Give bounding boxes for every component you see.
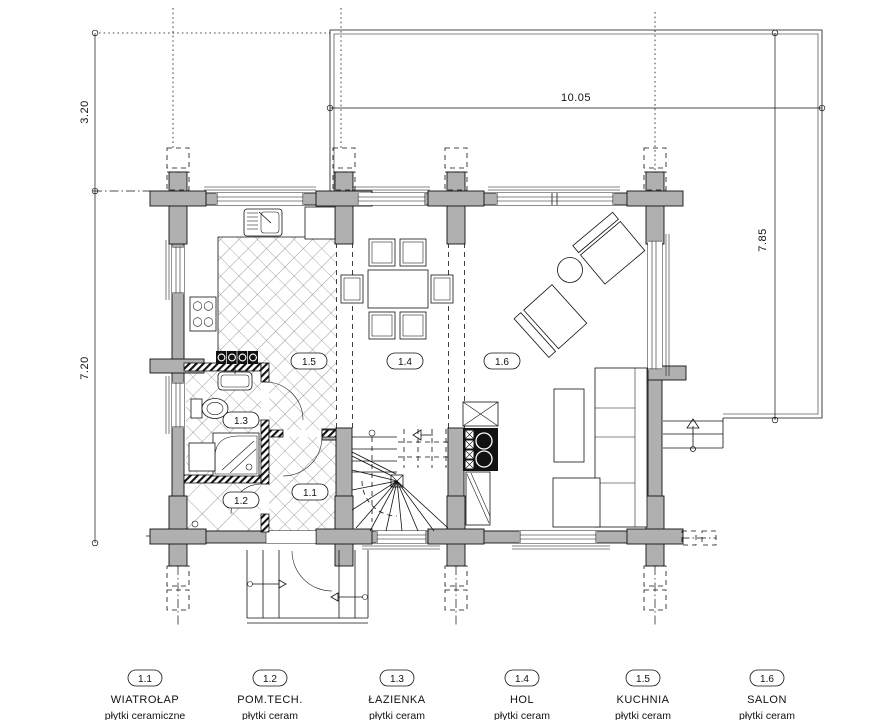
porch-arrow-left	[248, 580, 287, 588]
window-living-east	[648, 240, 662, 370]
svg-text:WIATROŁAP: WIATROŁAP	[111, 694, 179, 706]
window-kitchen-north	[216, 193, 304, 205]
terrace-steps	[663, 418, 723, 452]
corridor-floor-hatch	[269, 363, 336, 430]
room-label-1-4: 1.4	[387, 353, 423, 369]
svg-text:1.1: 1.1	[138, 674, 152, 685]
porch-arrow-right	[331, 593, 368, 601]
svg-text:1.5: 1.5	[302, 357, 316, 368]
window-hall-north	[357, 193, 426, 205]
fireplace	[463, 402, 498, 525]
dim-label-3-20: 3.20	[79, 100, 91, 123]
washing-machine	[189, 443, 215, 471]
svg-text:1.2: 1.2	[234, 496, 248, 507]
svg-text:KUCHNIA: KUCHNIA	[616, 694, 669, 706]
window-living-north	[496, 193, 614, 205]
dimension-left-upper: 3.20	[79, 30, 98, 194]
dim-label-10-05: 10.05	[561, 92, 591, 104]
room-label-1-2: 1.2	[223, 492, 259, 508]
svg-text:płytki ceram: płytki ceram	[369, 710, 425, 720]
svg-text:płytki ceram: płytki ceram	[494, 710, 550, 720]
floor-plan-drawing: 3.20 7.20 10.05 7.85	[0, 0, 870, 720]
legend-item-1-4: 1.4 HOL płytki ceram	[494, 670, 550, 720]
armchair-right	[573, 212, 645, 284]
floor-plan-sheet: 3.20 7.20 10.05 7.85	[0, 0, 870, 720]
kitchen-sink	[244, 209, 282, 236]
svg-text:1.4: 1.4	[515, 674, 529, 685]
fridge	[305, 207, 335, 239]
side-table	[558, 258, 583, 283]
toilet	[191, 399, 228, 419]
room-label-1-1: 1.1	[292, 484, 328, 500]
legend-item-1-5: 1.5 KUCHNIA płytki ceram	[615, 670, 671, 720]
svg-text:płytki ceram: płytki ceram	[242, 710, 298, 720]
handrail	[352, 452, 396, 474]
svg-text:płytki ceram: płytki ceram	[739, 710, 795, 720]
coffee-table	[554, 389, 584, 462]
staircase	[352, 429, 448, 531]
room-label-1-3: 1.3	[223, 412, 259, 428]
svg-text:1.1: 1.1	[303, 488, 317, 499]
living-room-furniture	[514, 212, 647, 527]
dim-label-7-85: 7.85	[757, 228, 769, 251]
svg-text:płytki ceram: płytki ceram	[615, 710, 671, 720]
svg-text:1.5: 1.5	[636, 674, 650, 685]
svg-text:płytki ceramiczne: płytki ceramiczne	[105, 710, 186, 720]
window-living-south	[519, 531, 597, 543]
svg-text:HOL: HOL	[510, 694, 534, 706]
armchair-left	[514, 285, 587, 358]
dining-set	[341, 239, 453, 339]
svg-text:1.6: 1.6	[495, 357, 509, 368]
shower	[213, 433, 259, 476]
svg-text:SALON: SALON	[747, 694, 787, 706]
legend: 1.1 WIATROŁAP płytki ceramiczne 1.2 POM.…	[105, 670, 796, 720]
dimension-left-lower: 7.20	[79, 191, 98, 546]
svg-text:1.2: 1.2	[263, 674, 277, 685]
window-bathroom-west	[172, 382, 184, 428]
svg-text:1.6: 1.6	[760, 674, 774, 685]
dim-label-7-20: 7.20	[79, 356, 91, 379]
svg-text:1.4: 1.4	[398, 357, 412, 368]
legend-item-1-2: 1.2 POM.TECH. płytki ceram	[237, 670, 303, 720]
svg-text:POM.TECH.: POM.TECH.	[237, 694, 303, 706]
room-label-1-6: 1.6	[484, 353, 520, 369]
dimension-top: 10.05	[327, 92, 825, 111]
stair-direction-arrow	[413, 430, 433, 440]
front-door-swing	[292, 551, 332, 591]
svg-text:ŁAZIENKA: ŁAZIENKA	[368, 694, 425, 706]
window-stair-south	[376, 531, 427, 543]
window-kitchen-west	[172, 246, 184, 294]
entry-door-opening	[266, 531, 316, 543]
svg-text:1.3: 1.3	[234, 416, 248, 427]
dimension-right: 7.85	[757, 30, 778, 423]
legend-item-1-1: 1.1 WIATROŁAP płytki ceramiczne	[105, 670, 186, 720]
legend-item-1-6: 1.6 SALON płytki ceram	[739, 670, 795, 720]
kitchen-floor-hatch	[218, 237, 336, 363]
room-label-1-5: 1.5	[291, 353, 327, 369]
cooktop	[190, 297, 216, 331]
heater-unit	[216, 351, 258, 364]
svg-text:1.3: 1.3	[390, 674, 404, 685]
legend-item-1-3: 1.3 ŁAZIENKA płytki ceram	[368, 670, 425, 720]
dining-table	[368, 270, 428, 308]
